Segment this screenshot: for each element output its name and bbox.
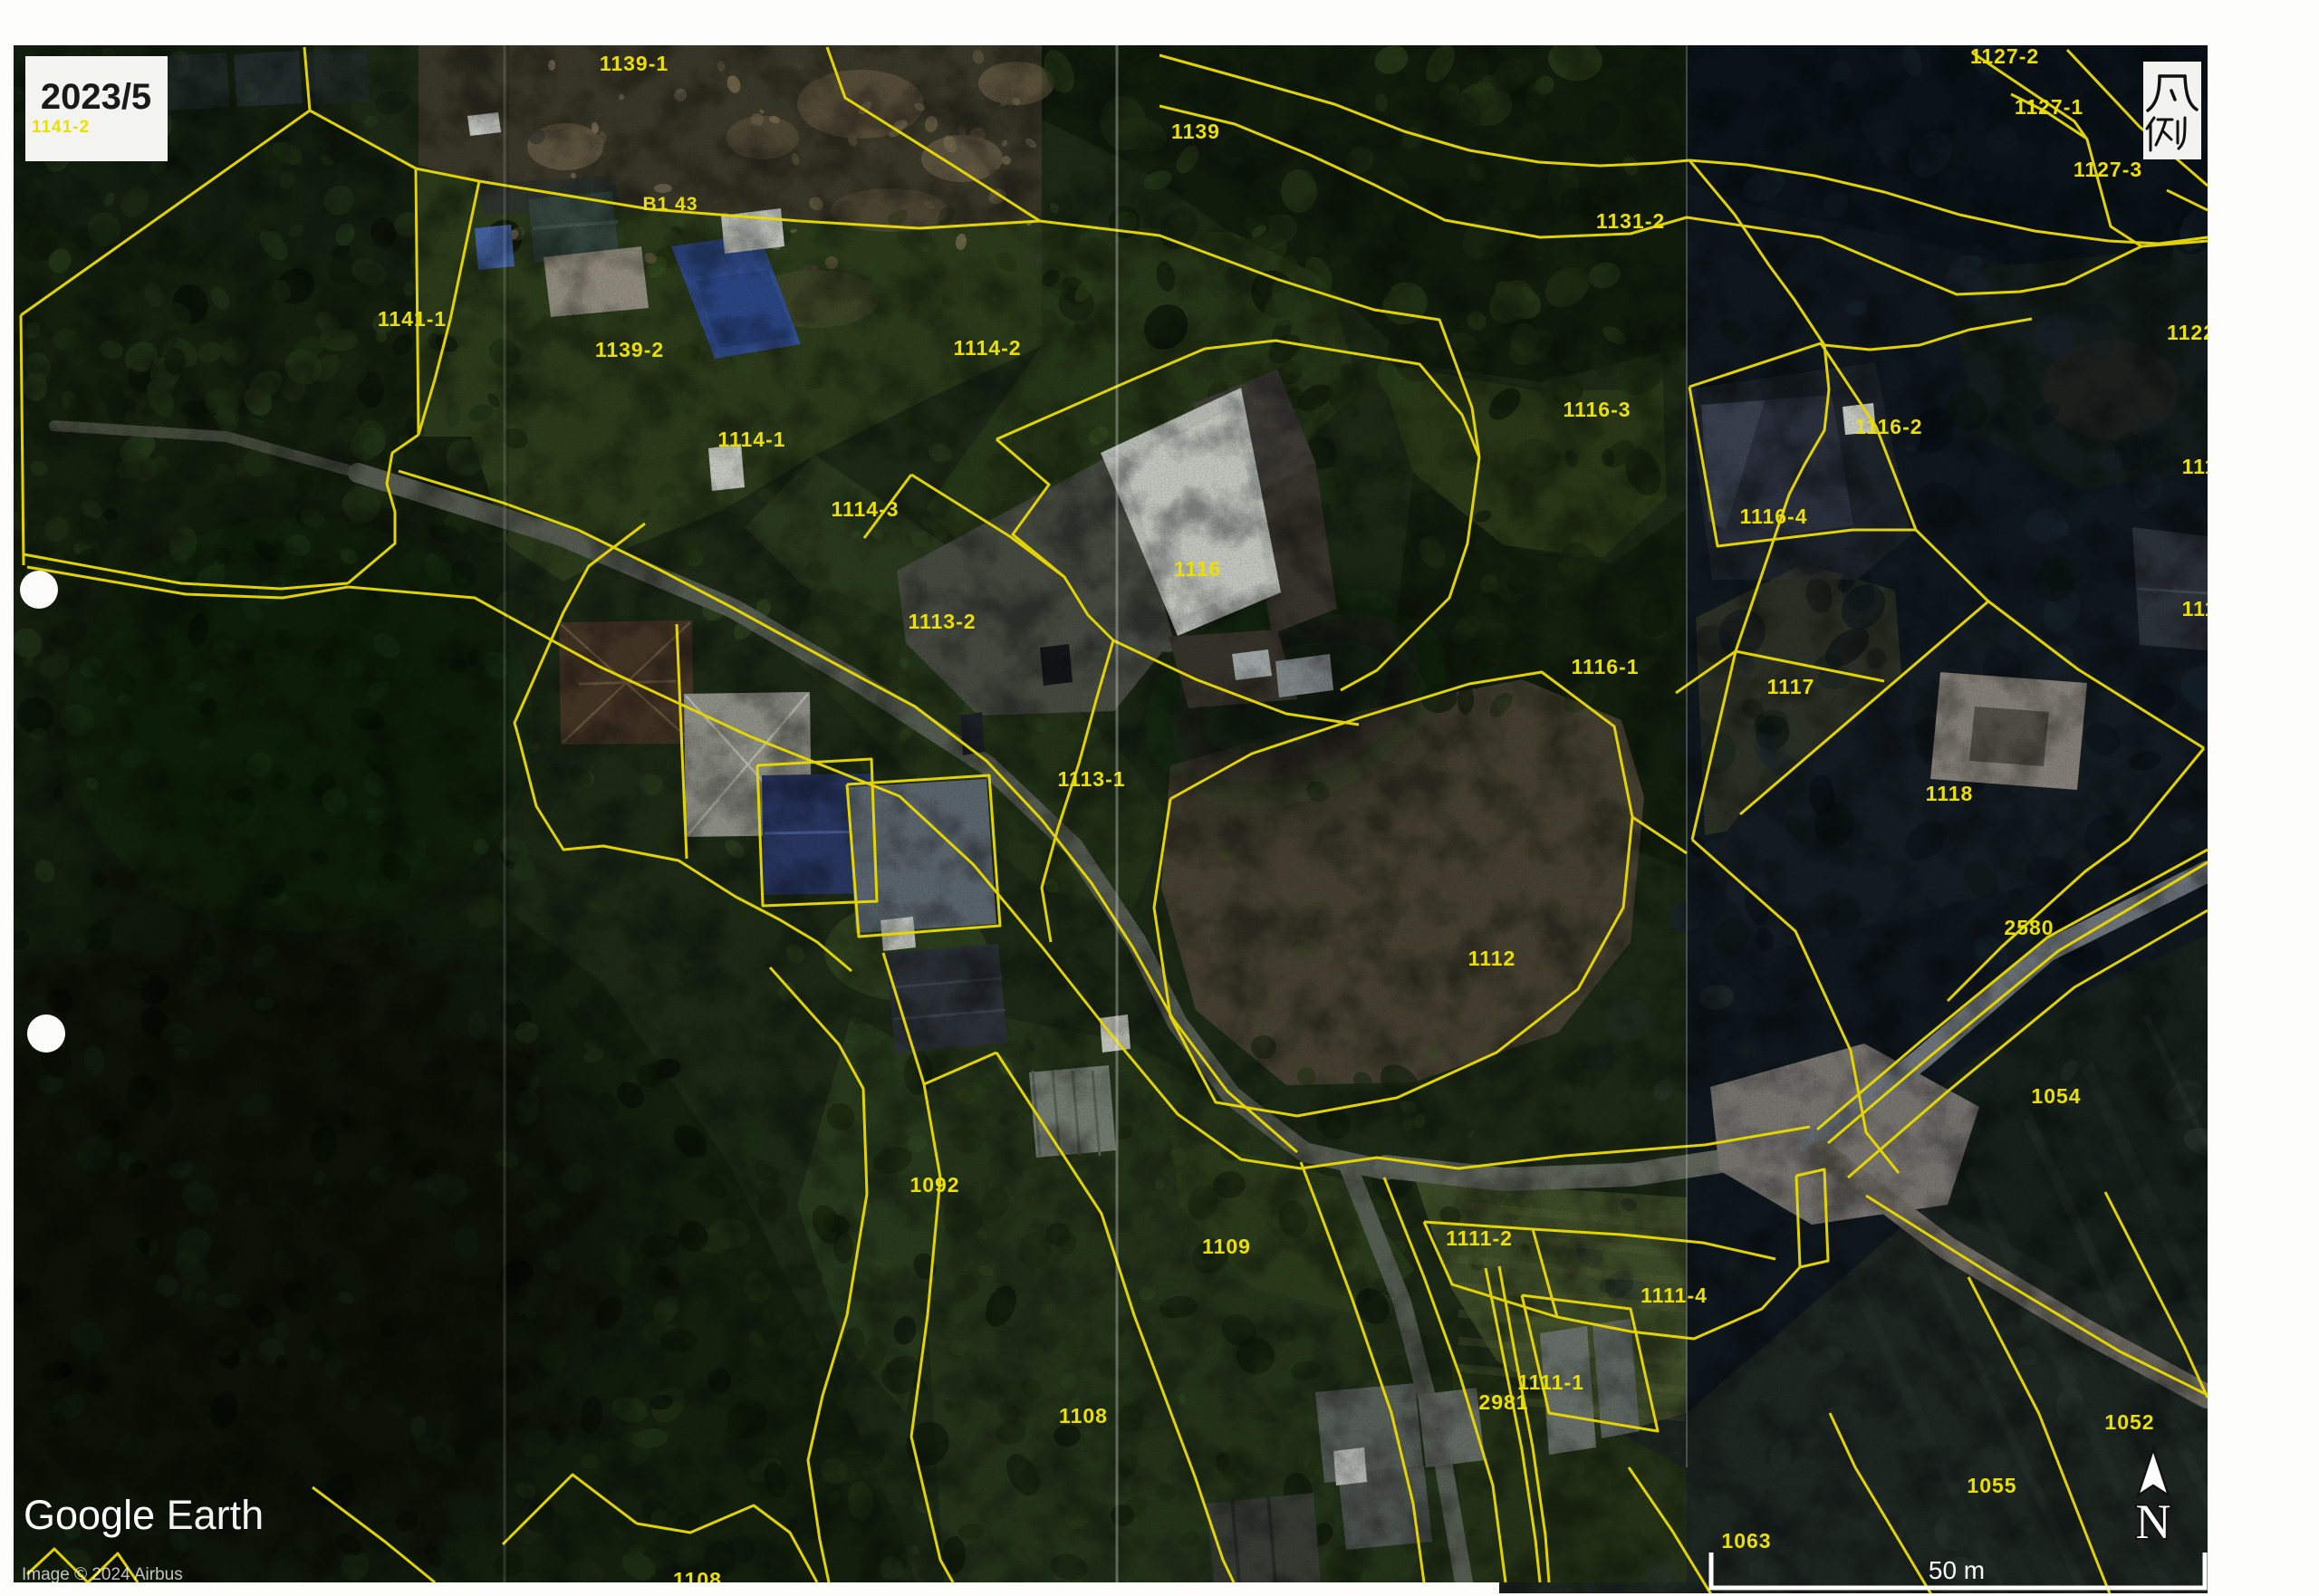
svg-text:1131-2: 1131-2 <box>1596 209 1665 233</box>
svg-text:1118: 1118 <box>1926 782 1974 805</box>
svg-text:1108: 1108 <box>1059 1404 1108 1428</box>
svg-text:2981: 2981 <box>1478 1390 1528 1414</box>
svg-text:1114-3: 1114-3 <box>831 497 899 521</box>
svg-text:1113-1: 1113-1 <box>1057 767 1125 791</box>
svg-text:1127-2: 1127-2 <box>1970 44 2039 68</box>
svg-text:1054: 1054 <box>2031 1084 2081 1108</box>
svg-text:50 m: 50 m <box>1929 1556 1985 1584</box>
svg-text:2580: 2580 <box>2004 916 2054 939</box>
svg-text:1139-2: 1139-2 <box>595 338 664 361</box>
svg-text:1117: 1117 <box>1767 675 1815 698</box>
svg-text:1111-2: 1111-2 <box>1446 1226 1513 1250</box>
svg-text:1052: 1052 <box>2104 1410 2154 1434</box>
svg-text:1116-2: 1116-2 <box>1854 415 1922 438</box>
svg-text:1112: 1112 <box>1468 947 1516 970</box>
svg-text:N: N <box>2136 1495 2171 1549</box>
svg-text:1116-3: 1116-3 <box>1563 398 1631 421</box>
svg-text:1116-1: 1116-1 <box>1571 655 1639 678</box>
svg-text:1114-1: 1114-1 <box>717 428 785 451</box>
svg-text:1055: 1055 <box>1967 1474 2016 1497</box>
svg-text:1113-2: 1113-2 <box>908 610 976 633</box>
svg-text:B1 43: B1 43 <box>642 194 698 215</box>
svg-text:1139-1: 1139-1 <box>600 52 669 75</box>
svg-text:1139: 1139 <box>1171 120 1220 143</box>
svg-text:1127-3: 1127-3 <box>2074 158 2142 181</box>
svg-text:1063: 1063 <box>1721 1529 1771 1553</box>
svg-text:Image © 2024 Airbus: Image © 2024 Airbus <box>22 1565 183 1584</box>
svg-text:1141-2: 1141-2 <box>32 118 90 137</box>
svg-text:1111-4: 1111-4 <box>1641 1284 1708 1307</box>
svg-text:1092: 1092 <box>909 1173 959 1197</box>
svg-text:1141-1: 1141-1 <box>378 307 447 331</box>
svg-text:1114-2: 1114-2 <box>953 336 1021 360</box>
svg-text:2023/5: 2023/5 <box>41 77 151 117</box>
svg-text:1127-1: 1127-1 <box>2015 95 2083 119</box>
svg-text:1116-4: 1116-4 <box>1739 505 1807 528</box>
svg-text:Google Earth: Google Earth <box>24 1492 264 1538</box>
svg-text:1116: 1116 <box>1174 557 1222 581</box>
svg-text:1109: 1109 <box>1202 1235 1251 1258</box>
